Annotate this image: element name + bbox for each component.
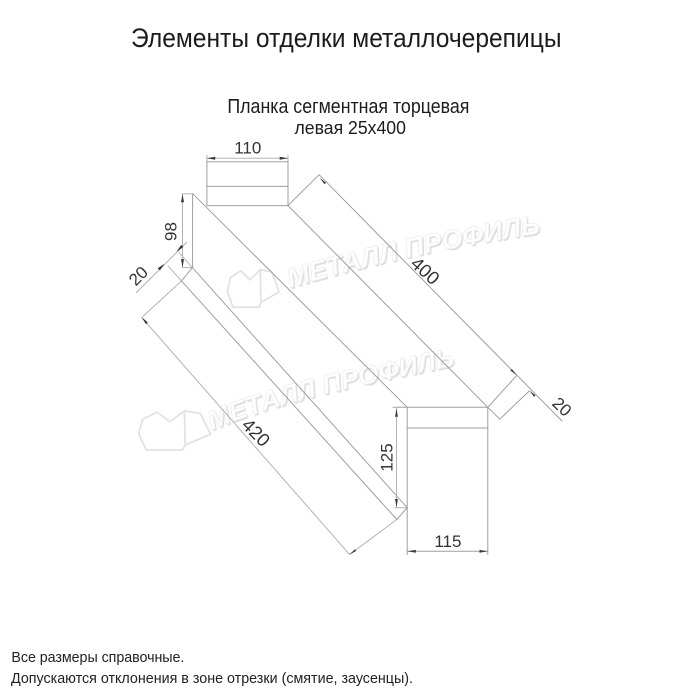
svg-text:98: 98 (162, 222, 181, 241)
svg-text:125: 125 (378, 443, 397, 471)
svg-text:110: 110 (234, 139, 261, 158)
svg-text:Все размеры справочные.: Все размеры справочные. (11, 650, 184, 666)
svg-text:Планка сегментная торцевая: Планка сегментная торцевая (227, 96, 469, 118)
svg-text:левая 25х400: левая 25х400 (295, 117, 406, 138)
svg-text:115: 115 (434, 532, 461, 551)
svg-text:Допускаются отклонения в зоне: Допускаются отклонения в зоне отрезки (с… (11, 671, 413, 687)
svg-text:Элементы отделки металлочерепи: Элементы отделки металлочерепицы (131, 23, 562, 53)
